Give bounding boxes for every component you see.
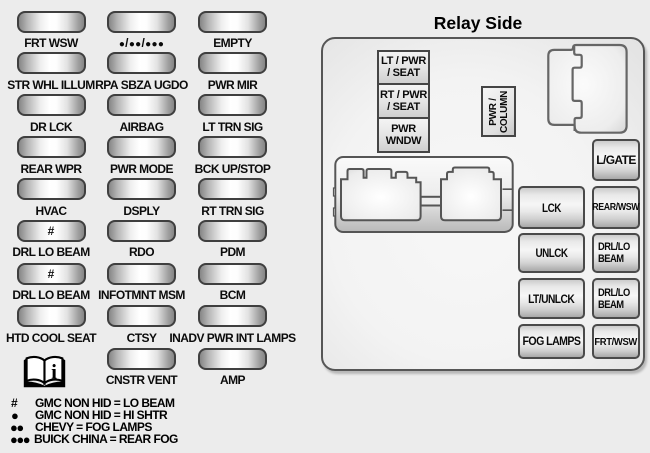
svg-text:i: i xyxy=(51,360,57,384)
